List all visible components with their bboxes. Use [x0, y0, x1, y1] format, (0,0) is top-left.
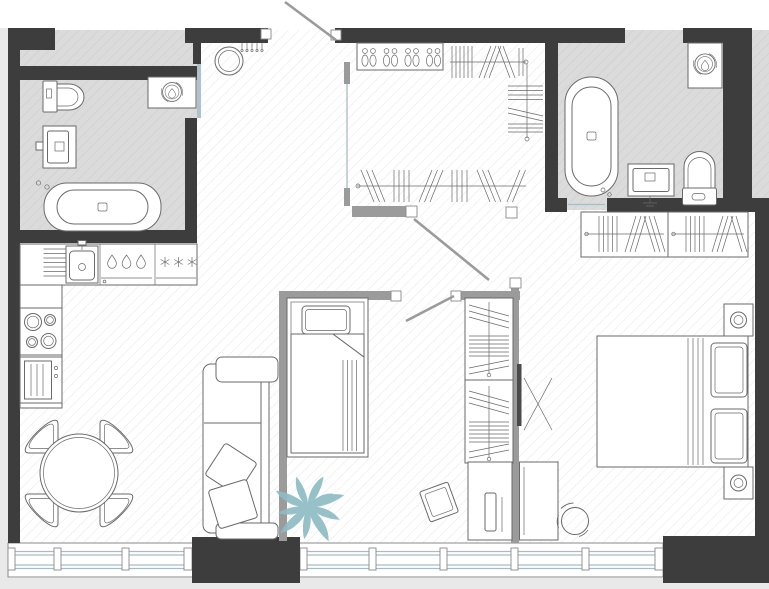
folded-blanket	[291, 334, 364, 453]
kids-cabinet	[468, 462, 512, 540]
wall-bathroom-right-side	[723, 43, 752, 198]
wall-right-outer	[755, 198, 769, 545]
wall-bathroom-right-bottom-a	[545, 198, 567, 212]
toilet	[683, 151, 717, 205]
window-band	[8, 543, 663, 577]
closet-partition-stub-bottom	[344, 188, 350, 206]
wall-top-left-corner	[8, 28, 55, 50]
wall-top-entry-left	[185, 28, 268, 43]
washing-machine-niche	[148, 77, 196, 108]
counter-top-run	[20, 244, 197, 285]
floor-plan-canvas	[0, 0, 769, 589]
cooktop	[20, 308, 62, 355]
sofa-armrest-top	[216, 357, 278, 382]
bottom-margin-strip	[0, 578, 769, 589]
wall-tv	[517, 364, 522, 426]
wall-top-right	[683, 28, 752, 43]
wall-closet-bathroom-divider	[545, 28, 558, 212]
cap-niche-wall	[391, 291, 401, 301]
wall-entry-stub	[193, 43, 201, 64]
sofa	[203, 357, 278, 539]
left-margin-strip	[0, 28, 8, 589]
kids-wardrobe	[465, 298, 513, 463]
bedroom-wardrobe	[581, 212, 748, 257]
cap-partition-top	[510, 278, 521, 288]
bedroom-desk	[520, 462, 559, 540]
bed-pillow-2	[711, 409, 747, 463]
partition-sofa	[279, 291, 287, 541]
cap-closet-door	[406, 206, 417, 217]
closet-partition-stub-top	[344, 62, 350, 84]
bathroom-left-sliding-panel	[197, 64, 201, 118]
shoe-rack	[357, 43, 443, 70]
wall-bathroom-right-bottom-b	[607, 198, 755, 212]
faucet	[36, 142, 43, 150]
washing-machine-niche	[688, 43, 722, 88]
freestanding-bathtub	[565, 77, 618, 196]
wall-left-outer	[8, 28, 20, 543]
dining-set	[25, 420, 133, 527]
wall-pier-bottom-right	[663, 536, 769, 583]
nightstand-bottom	[724, 467, 753, 499]
wall-kitchen-top	[20, 230, 197, 243]
nightstand-top	[724, 304, 753, 336]
cap-entry-left	[261, 29, 271, 39]
built-in-bathtub	[36, 181, 161, 231]
floor-plan-page	[0, 0, 769, 589]
wall-top-middle	[335, 28, 625, 43]
cap-closet-opening	[506, 207, 517, 218]
bed-pillow-1	[711, 343, 747, 397]
pillow	[302, 306, 350, 334]
wall-bathroom-left-side	[185, 118, 197, 232]
double-bed	[597, 336, 748, 467]
oven	[20, 357, 62, 403]
wall-closet-bottom	[352, 206, 410, 217]
single-bed	[287, 298, 368, 457]
dining-table	[40, 434, 118, 512]
wall-pier-bottom-left	[192, 537, 300, 583]
window-frame	[8, 543, 663, 577]
shaft-strip-right	[752, 30, 769, 198]
